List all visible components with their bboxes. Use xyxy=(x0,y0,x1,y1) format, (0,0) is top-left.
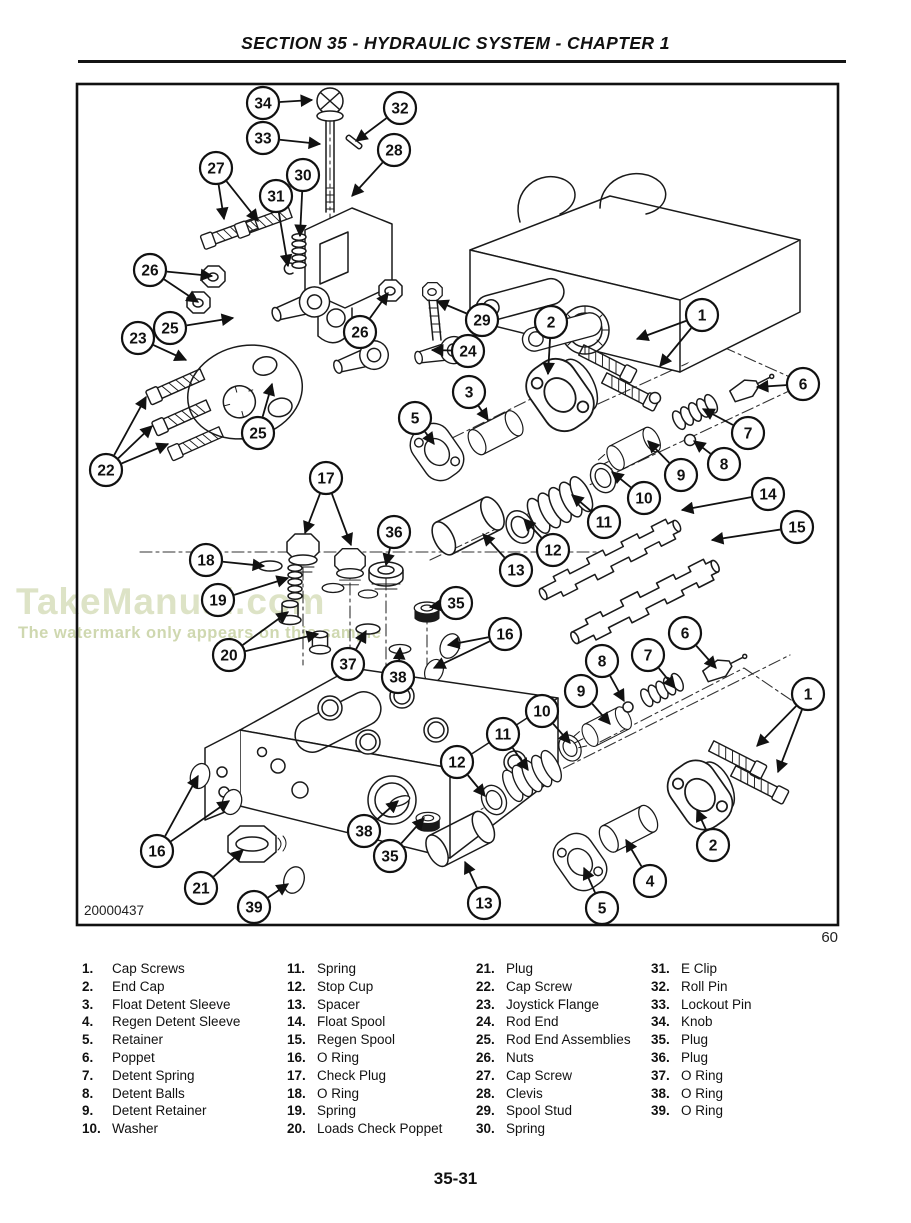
callout-18: 18 xyxy=(190,544,264,576)
part-number: 19. xyxy=(287,1102,317,1120)
part-label: Cap Screw xyxy=(506,1067,572,1085)
part-item: 23.Joystick Flange xyxy=(476,996,631,1014)
callout-17: 17 xyxy=(305,462,351,545)
callout-number: 39 xyxy=(245,900,263,917)
part-item: 1.Cap Screws xyxy=(82,960,240,978)
callout-number: 26 xyxy=(141,263,159,280)
callout-leader-line xyxy=(468,775,485,796)
part-item: 5.Retainer xyxy=(82,1031,240,1049)
callout-leader-line xyxy=(187,318,233,325)
callout-number: 16 xyxy=(148,844,166,861)
callout-leader-line xyxy=(592,704,610,724)
part-number: 5. xyxy=(82,1031,112,1049)
callout-leader-line xyxy=(356,118,386,141)
callout-leader-line xyxy=(227,181,258,221)
callout-number: 13 xyxy=(507,563,525,580)
callout-leader-line xyxy=(352,163,383,196)
part-number: 20. xyxy=(287,1120,317,1138)
callout-36: 36 xyxy=(378,516,410,565)
callout-leader-line xyxy=(332,494,351,545)
callout-number: 1 xyxy=(804,687,813,704)
manual-page: SECTION 35 - HYDRAULIC SYSTEM - CHAPTER … xyxy=(0,0,911,1223)
part-label: Spring xyxy=(317,960,356,978)
callout-leader-line xyxy=(757,385,786,387)
part-number: 14. xyxy=(287,1013,317,1031)
part-label: End Cap xyxy=(112,978,165,996)
callout-number: 28 xyxy=(385,143,403,160)
callout-number: 25 xyxy=(249,426,267,443)
part-number: 1. xyxy=(82,960,112,978)
part-item: 30.Spring xyxy=(476,1120,631,1138)
part-item: 29.Spool Stud xyxy=(476,1102,631,1120)
figure-number: 20000437 xyxy=(84,903,144,918)
part-number: 9. xyxy=(82,1102,112,1120)
callout-number: 37 xyxy=(339,657,356,674)
part-number: 37. xyxy=(651,1067,681,1085)
callout-number: 38 xyxy=(389,670,407,687)
callout-leader-line xyxy=(153,345,186,360)
page-number: 35-31 xyxy=(0,1169,911,1189)
callout-leader-line xyxy=(399,648,400,660)
part-item: 14.Float Spool xyxy=(287,1013,442,1031)
callout-leader-line xyxy=(223,562,264,566)
callout-number: 2 xyxy=(709,838,718,855)
callout-number: 8 xyxy=(720,457,729,474)
callout-leader-line xyxy=(280,100,312,102)
callout-leader-line xyxy=(696,646,716,668)
part-number: 26. xyxy=(476,1049,506,1067)
part-number: 29. xyxy=(476,1102,506,1120)
part-number: 27. xyxy=(476,1067,506,1085)
part-number: 30. xyxy=(476,1120,506,1138)
callout-3: 3 xyxy=(453,376,488,420)
callout-8: 8 xyxy=(694,441,740,480)
part-item: 10.Washer xyxy=(82,1120,240,1138)
callout-number: 16 xyxy=(496,627,514,644)
callout-15: 15 xyxy=(712,511,813,543)
callout-number: 36 xyxy=(385,525,403,542)
part-item: 19.Spring xyxy=(287,1102,442,1120)
callout-leader-line xyxy=(778,710,802,772)
callout-number: 7 xyxy=(644,648,653,665)
part-label: Rod End xyxy=(506,1013,559,1031)
part-number: 35. xyxy=(651,1031,681,1049)
callout-number: 1 xyxy=(698,308,707,325)
parts-list-column-2: 11.Spring12.Stop Cup13.Spacer14.Float Sp… xyxy=(287,960,442,1138)
callout-leader-line xyxy=(280,140,320,144)
part-item: 25.Rod End Assemblies xyxy=(476,1031,631,1049)
part-label: Washer xyxy=(112,1120,158,1138)
callout-leader-line xyxy=(122,444,168,463)
callout-leader-line xyxy=(479,406,488,420)
part-number: 10. xyxy=(82,1120,112,1138)
callout-number: 5 xyxy=(411,411,420,428)
callout-number: 30 xyxy=(294,168,311,185)
part-item: 34.Knob xyxy=(651,1013,752,1031)
callout-leader-line xyxy=(164,279,198,302)
callout-number: 3 xyxy=(465,385,474,402)
part-label: O Ring xyxy=(317,1085,359,1103)
part-item: 31.E Clip xyxy=(651,960,752,978)
part-label: Float Detent Sleeve xyxy=(112,996,231,1014)
parts-list-column-3: 21.Plug22.Cap Screw23.Joystick Flange24.… xyxy=(476,960,631,1138)
part-number: 15. xyxy=(287,1031,317,1049)
callout-24: 24 xyxy=(432,335,484,367)
callout-leader-line xyxy=(437,301,466,313)
callout-number: 11 xyxy=(596,515,613,532)
part-number: 12. xyxy=(287,978,317,996)
part-number: 3. xyxy=(82,996,112,1014)
part-label: Cap Screw xyxy=(506,978,572,996)
callout-leader-line xyxy=(243,612,288,645)
part-item: 17.Check Plug xyxy=(287,1067,442,1085)
part-item: 7.Detent Spring xyxy=(82,1067,240,1085)
part-label: O Ring xyxy=(317,1049,359,1067)
callout-number: 33 xyxy=(254,131,272,148)
callout-number: 2 xyxy=(547,315,556,332)
callout-34: 34 xyxy=(247,87,312,119)
part-item: 13.Spacer xyxy=(287,996,442,1014)
callout-number: 14 xyxy=(759,487,777,504)
callout-number: 5 xyxy=(598,901,607,918)
part-item: 2.End Cap xyxy=(82,978,240,996)
part-label: Clevis xyxy=(506,1085,543,1103)
callout-leader-line xyxy=(432,350,451,351)
callout-number: 21 xyxy=(192,881,210,898)
callout-25: 25 xyxy=(154,312,233,344)
part-number: 25. xyxy=(476,1031,506,1049)
callout-14: 14 xyxy=(682,478,784,510)
part-label: Stop Cup xyxy=(317,978,373,996)
part-label: Detent Balls xyxy=(112,1085,185,1103)
callout-leader-line xyxy=(300,192,302,236)
page-title: SECTION 35 - HYDRAULIC SYSTEM - CHAPTER … xyxy=(0,33,911,54)
callout-number: 38 xyxy=(355,824,373,841)
part-number: 36. xyxy=(651,1049,681,1067)
part-item: 20.Loads Check Poppet xyxy=(287,1120,442,1138)
part-number: 34. xyxy=(651,1013,681,1031)
part-label: Check Plug xyxy=(317,1067,386,1085)
part-number: 23. xyxy=(476,996,506,1014)
callout-leader-line xyxy=(171,801,229,841)
part-item: 35.Plug xyxy=(651,1031,752,1049)
part-number: 38. xyxy=(651,1085,681,1103)
part-item: 24.Rod End xyxy=(476,1013,631,1031)
part-item: 37.O Ring xyxy=(651,1067,752,1085)
part-label: Spacer xyxy=(317,996,360,1014)
callout-leader-line xyxy=(268,884,288,897)
part-number: 2. xyxy=(82,978,112,996)
callout-number: 23 xyxy=(129,331,147,348)
part-number: 18. xyxy=(287,1085,317,1103)
callout-leader-line xyxy=(370,293,388,318)
callout-number: 34 xyxy=(254,96,272,113)
part-item: 26.Nuts xyxy=(476,1049,631,1067)
callout-number: 8 xyxy=(598,654,607,671)
part-item: 9.Detent Retainer xyxy=(82,1102,240,1120)
part-item: 38.O Ring xyxy=(651,1085,752,1103)
part-item: 39.O Ring xyxy=(651,1102,752,1120)
callout-number: 35 xyxy=(381,849,399,866)
part-item: 12.Stop Cup xyxy=(287,978,442,996)
callout-39: 39 xyxy=(238,884,288,923)
part-label: Lockout Pin xyxy=(681,996,752,1014)
callout-number: 24 xyxy=(459,344,477,361)
callout-leader-line xyxy=(214,850,243,877)
part-label: O Ring xyxy=(681,1102,723,1120)
part-item: 21.Plug xyxy=(476,960,631,978)
callout-21: 21 xyxy=(185,850,243,904)
callout-22: 22 xyxy=(90,397,168,486)
part-number: 4. xyxy=(82,1013,112,1031)
callout-7: 7 xyxy=(632,639,675,688)
callout-leader-line xyxy=(483,534,505,557)
callout-number: 31 xyxy=(267,189,285,206)
callout-number: 11 xyxy=(495,727,512,744)
parts-list-column-1: 1.Cap Screws2.End Cap3.Float Detent Slee… xyxy=(82,960,240,1138)
part-number: 22. xyxy=(476,978,506,996)
part-number: 6. xyxy=(82,1049,112,1067)
callout-37: 37 xyxy=(332,631,366,680)
callout-7: 7 xyxy=(703,409,764,449)
callout-number: 20 xyxy=(220,648,237,665)
part-label: Loads Check Poppet xyxy=(317,1120,442,1138)
part-item: 33.Lockout Pin xyxy=(651,996,752,1014)
part-label: Cap Screws xyxy=(112,960,185,978)
part-number: 31. xyxy=(651,960,681,978)
part-label: Regen Spool xyxy=(317,1031,395,1049)
part-label: Float Spool xyxy=(317,1013,385,1031)
part-label: Nuts xyxy=(506,1049,534,1067)
part-label: Roll Pin xyxy=(681,978,728,996)
part-item: 36.Plug xyxy=(651,1049,752,1067)
callout-leader-line xyxy=(219,185,224,219)
part-number: 13. xyxy=(287,996,317,1014)
callout-9: 9 xyxy=(565,675,610,724)
part-label: Plug xyxy=(681,1049,708,1067)
callout-number: 35 xyxy=(447,596,465,613)
part-label: E Clip xyxy=(681,960,717,978)
part-number: 39. xyxy=(651,1102,681,1120)
part-number: 33. xyxy=(651,996,681,1014)
exploded-view-linework xyxy=(140,88,810,897)
part-label: Poppet xyxy=(112,1049,155,1067)
part-item: 27.Cap Screw xyxy=(476,1067,631,1085)
callout-leader-line xyxy=(246,634,318,651)
callout-20: 20 xyxy=(213,612,318,671)
part-label: Spring xyxy=(506,1120,545,1138)
part-item: 22.Cap Screw xyxy=(476,978,631,996)
callout-29: 29 xyxy=(437,301,498,336)
part-item: 4.Regen Detent Sleeve xyxy=(82,1013,240,1031)
callout-leader-line xyxy=(305,494,320,533)
part-number: 24. xyxy=(476,1013,506,1031)
part-item: 8.Detent Balls xyxy=(82,1085,240,1103)
part-label: Spool Stud xyxy=(506,1102,572,1120)
callout-number: 17 xyxy=(317,471,334,488)
part-number: 8. xyxy=(82,1085,112,1103)
callout-6: 6 xyxy=(757,368,819,400)
callout-number: 19 xyxy=(209,593,227,610)
part-item: 18.O Ring xyxy=(287,1085,442,1103)
callout-number: 15 xyxy=(788,520,806,537)
callout-leader-line xyxy=(694,441,711,454)
part-item: 32.Roll Pin xyxy=(651,978,752,996)
part-number: 16. xyxy=(287,1049,317,1067)
part-number: 11. xyxy=(287,960,317,978)
parts-list-column-4: 31.E Clip32.Roll Pin33.Lockout Pin34.Kno… xyxy=(651,960,752,1120)
callout-number: 10 xyxy=(635,491,652,508)
part-item: 15.Regen Spool xyxy=(287,1031,442,1049)
callout-leader-line xyxy=(626,840,641,866)
callout-number: 27 xyxy=(207,161,224,178)
callout-38: 38 xyxy=(382,648,414,693)
figure-caption-number: 60 xyxy=(78,929,838,946)
part-label: Plug xyxy=(506,960,533,978)
part-label: Detent Spring xyxy=(112,1067,195,1085)
part-label: Knob xyxy=(681,1013,713,1031)
callout-number: 10 xyxy=(533,704,550,721)
callout-leader-line xyxy=(712,530,780,540)
part-label: Joystick Flange xyxy=(506,996,599,1014)
callout-number: 9 xyxy=(677,468,686,485)
part-label: Regen Detent Sleeve xyxy=(112,1013,240,1031)
callout-6: 6 xyxy=(669,617,716,668)
callout-4: 4 xyxy=(626,840,666,897)
callout-number: 6 xyxy=(681,626,690,643)
part-label: Retainer xyxy=(112,1031,163,1049)
callout-number: 12 xyxy=(544,543,561,560)
header-rule xyxy=(78,60,846,63)
part-number: 28. xyxy=(476,1085,506,1103)
callout-number: 13 xyxy=(475,896,493,913)
part-label: Spring xyxy=(317,1102,356,1120)
callout-number: 7 xyxy=(744,426,753,443)
part-label: O Ring xyxy=(681,1067,723,1085)
callout-leader-line xyxy=(465,862,477,888)
callout-number: 25 xyxy=(161,321,179,338)
part-item: 3.Float Detent Sleeve xyxy=(82,996,240,1014)
callout-number: 32 xyxy=(391,101,408,118)
part-item: 11.Spring xyxy=(287,960,442,978)
callout-number: 9 xyxy=(577,684,586,701)
part-number: 17. xyxy=(287,1067,317,1085)
callout-number: 18 xyxy=(197,553,215,570)
callout-number: 29 xyxy=(473,313,491,330)
part-item: 28.Clevis xyxy=(476,1085,631,1103)
callout-1: 1 xyxy=(757,678,824,772)
callout-27: 27 xyxy=(200,152,258,221)
part-label: O Ring xyxy=(681,1085,723,1103)
callout-13: 13 xyxy=(465,862,500,919)
callout-leader-line xyxy=(610,676,624,701)
callout-leader-line xyxy=(165,776,198,836)
callout-9: 9 xyxy=(648,441,697,491)
part-label: Detent Retainer xyxy=(112,1102,207,1120)
part-item: 16.O Ring xyxy=(287,1049,442,1067)
callout-number: 12 xyxy=(448,755,465,772)
callout-leader-line xyxy=(234,578,288,595)
part-number: 32. xyxy=(651,978,681,996)
part-number: 7. xyxy=(82,1067,112,1085)
part-number: 21. xyxy=(476,960,506,978)
callout-number: 22 xyxy=(97,463,114,480)
callout-number: 26 xyxy=(351,325,369,342)
part-item: 6.Poppet xyxy=(82,1049,240,1067)
callout-10: 10 xyxy=(612,472,660,514)
callout-number: 6 xyxy=(799,377,808,394)
part-label: Rod End Assemblies xyxy=(506,1031,631,1049)
callout-19: 19 xyxy=(202,578,288,616)
callout-leader-line xyxy=(682,497,751,510)
callout-32: 32 xyxy=(356,92,416,141)
callout-33: 33 xyxy=(247,122,320,154)
part-label: Plug xyxy=(681,1031,708,1049)
callout-number: 4 xyxy=(646,874,655,891)
